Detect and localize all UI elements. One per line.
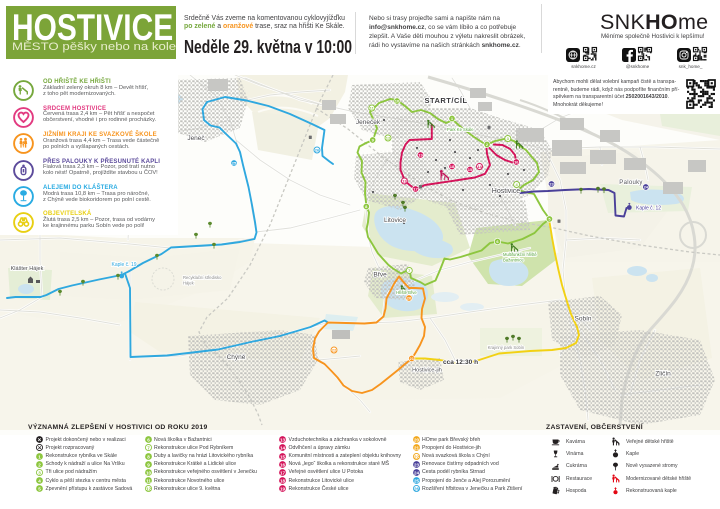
svg-text:4: 4 xyxy=(38,478,41,483)
svg-text:15: 15 xyxy=(280,454,286,459)
svg-text:19: 19 xyxy=(280,487,286,492)
svg-text:24: 24 xyxy=(413,470,419,475)
svg-text:17: 17 xyxy=(280,470,286,475)
svg-text:6: 6 xyxy=(147,438,150,443)
svg-text:11: 11 xyxy=(146,478,151,483)
svg-text:8: 8 xyxy=(147,454,150,459)
svg-text:1: 1 xyxy=(38,454,41,459)
svg-text:25: 25 xyxy=(413,478,419,483)
svg-text:✕: ✕ xyxy=(37,446,41,452)
svg-text:22: 22 xyxy=(413,454,419,459)
svg-text:20: 20 xyxy=(413,438,419,443)
svg-text:26: 26 xyxy=(413,487,419,492)
svg-text:23: 23 xyxy=(413,462,419,467)
svg-text:13: 13 xyxy=(280,438,286,443)
svg-text:9: 9 xyxy=(147,462,150,467)
svg-text:16: 16 xyxy=(280,462,286,467)
svg-text:✕: ✕ xyxy=(37,438,41,444)
svg-text:3: 3 xyxy=(38,470,41,475)
svg-text:2: 2 xyxy=(38,462,41,467)
svg-text:7: 7 xyxy=(147,446,150,451)
svg-text:21: 21 xyxy=(413,446,419,451)
svg-text:12: 12 xyxy=(145,487,151,492)
svg-text:18: 18 xyxy=(280,478,286,483)
svg-text:14: 14 xyxy=(280,446,286,451)
svg-text:10: 10 xyxy=(145,470,151,475)
svg-text:5: 5 xyxy=(38,487,41,492)
